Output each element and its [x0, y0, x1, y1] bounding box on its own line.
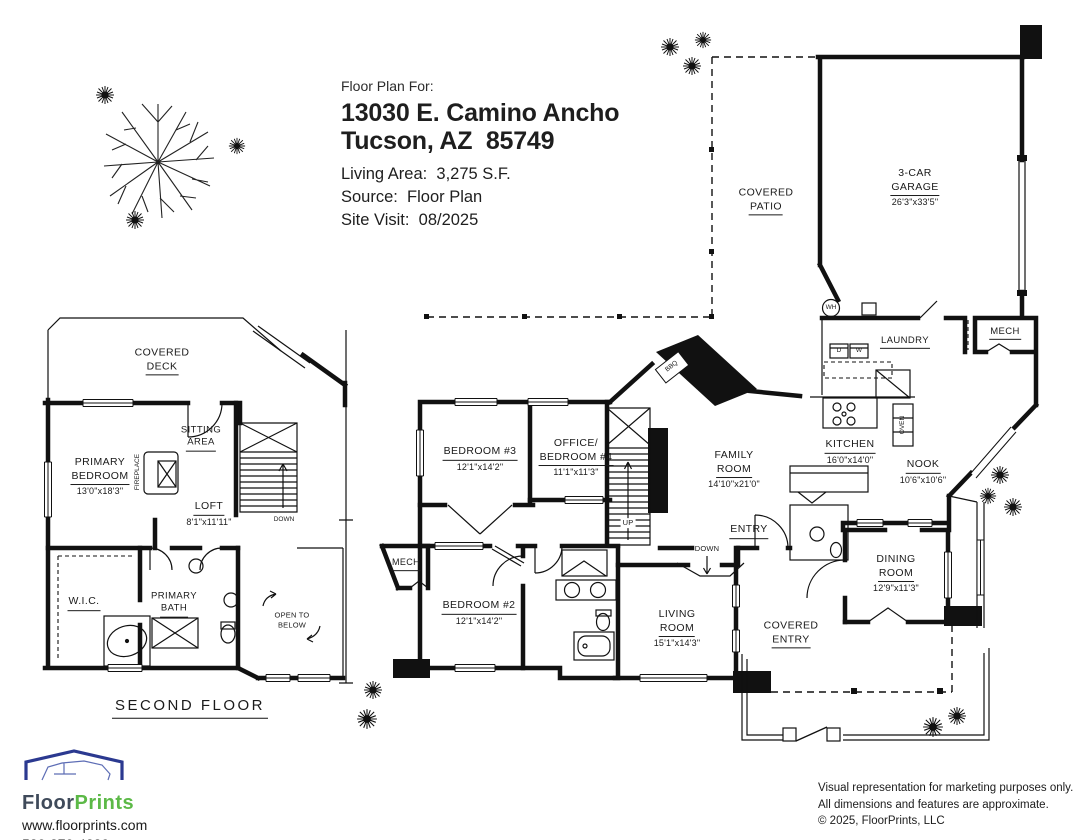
door-leaf: [920, 301, 937, 318]
title-block: Floor Plan For: 13030 E. Camino Ancho Tu…: [341, 78, 619, 232]
garage-door: [1019, 160, 1025, 292]
stairs-up-arrow-icon: [625, 462, 632, 540]
room-label-covered-deck: COVEREDDECK: [135, 346, 190, 375]
door-arc: [807, 560, 845, 598]
living-area: Living Area: 3,275 S.F.: [341, 163, 619, 186]
label-fireplace: FIREPLACE: [134, 454, 142, 490]
phone-number: 520-270-4230: [22, 836, 147, 840]
dining-bay-notch: [868, 608, 908, 622]
room-label-laundry: LAUNDRY: [880, 335, 930, 349]
logo-wordmark: FloorPrints: [22, 792, 147, 815]
label-down-1f: DOWN: [695, 544, 720, 554]
site-visit: Site Visit: 08/2025: [341, 209, 619, 232]
room-label-nook: NOOK10'6"x10'6": [900, 458, 947, 486]
floorprints-logo: FloorPrints www.floorprints.com 520-270-…: [22, 748, 147, 840]
door-arc: [493, 556, 523, 586]
fireplace-icon: [144, 452, 178, 494]
room-label-bedroom-2: BEDROOM #212'1"x14'2": [442, 599, 517, 627]
open-below-arrow: [263, 591, 276, 606]
room-label-mech-left: MECH: [391, 557, 421, 571]
room-label-office-bedroom-4: OFFICE/BEDROOM #411'1"x11'3": [539, 437, 614, 479]
room-label-wic: W.I.C.: [68, 595, 101, 611]
label-washer: W: [856, 347, 862, 355]
source: Source: Floor Plan: [341, 186, 619, 209]
room-label-bedroom-3: BEDROOM #312'1"x14'2": [443, 445, 518, 473]
kitchen-counter: [790, 466, 868, 492]
label-dryer: D: [837, 347, 842, 355]
title-prefix: Floor Plan For:: [341, 78, 619, 94]
cooktop-icon: [833, 403, 855, 425]
logo-word-floor: Floor: [22, 792, 75, 814]
powder-room: [790, 505, 848, 560]
second-floor-title: SECOND FLOOR: [112, 696, 268, 719]
double-door-leaves: [448, 505, 512, 534]
floorprints-logo-icon: [22, 748, 126, 790]
label-water-heater: WH: [826, 304, 837, 312]
label-oven: OVEN: [899, 416, 907, 434]
kitchen-island: [823, 398, 877, 428]
room-label-kitchen: KITCHEN16'0"x14'0": [825, 438, 876, 466]
label-down-2f: DOWN: [274, 516, 295, 524]
toilet-icon: [831, 543, 842, 558]
sink-icon: [591, 583, 606, 598]
address-line-2: Tucson, AZ 85749: [341, 127, 619, 155]
room-label-covered-patio: COVEREDPATIO: [739, 186, 794, 215]
address-line-1: 13030 E. Camino Ancho: [341, 99, 619, 127]
room-label-loft: LOFT8'1"x11'11": [186, 500, 231, 528]
door-arc: [150, 548, 172, 570]
toilet-icon: [221, 625, 235, 643]
room-label-garage: 3-CARGARAGE26'3"x33'5": [890, 167, 939, 209]
room-label-living-room: LIVINGROOM15'1"x14'3": [654, 608, 701, 650]
room-label-entry: ENTRY: [729, 523, 768, 539]
website-url: www.floorprints.com: [22, 817, 147, 833]
disclaimer-block: Visual representation for marketing purp…: [818, 780, 1073, 830]
entry-gate-icon: [783, 726, 843, 744]
room-label-covered-entry: COVEREDENTRY: [764, 619, 819, 648]
disclaimer-line-1: Visual representation for marketing purp…: [818, 780, 1073, 797]
room-label-primary-bedroom: PRIMARYBEDROOM13'0"x18'3": [70, 456, 129, 498]
copyright-line: © 2025, FloorPrints, LLC: [818, 813, 1073, 830]
room-label-family-room: FAMILYROOM14'10"x21'0": [708, 449, 760, 491]
room-label-sitting-area: SITTINGAREA: [181, 425, 221, 452]
room-label-dining-room: DININGROOM12'9"x11'3": [873, 553, 919, 595]
sink-icon: [810, 527, 824, 541]
bay-window-icon: [971, 427, 1016, 478]
sink-icon: [565, 583, 580, 598]
label-open-to-below: OPEN TOBELOW: [275, 610, 310, 630]
floorplan-page: Floor Plan For: 13030 E. Camino Ancho Tu…: [0, 0, 1087, 840]
room-label-primary-bath: PRIMARYBATH: [151, 591, 197, 618]
tree-icon: [104, 104, 214, 218]
step-down-arrow-icon: [704, 556, 711, 574]
label-up: UP: [621, 518, 636, 528]
disclaimer-line-2: All dimensions and features are approxim…: [818, 797, 1073, 814]
logo-word-prints: Prints: [75, 792, 135, 814]
room-label-mech-right: MECH: [989, 326, 1021, 340]
door-arc: [535, 546, 562, 573]
